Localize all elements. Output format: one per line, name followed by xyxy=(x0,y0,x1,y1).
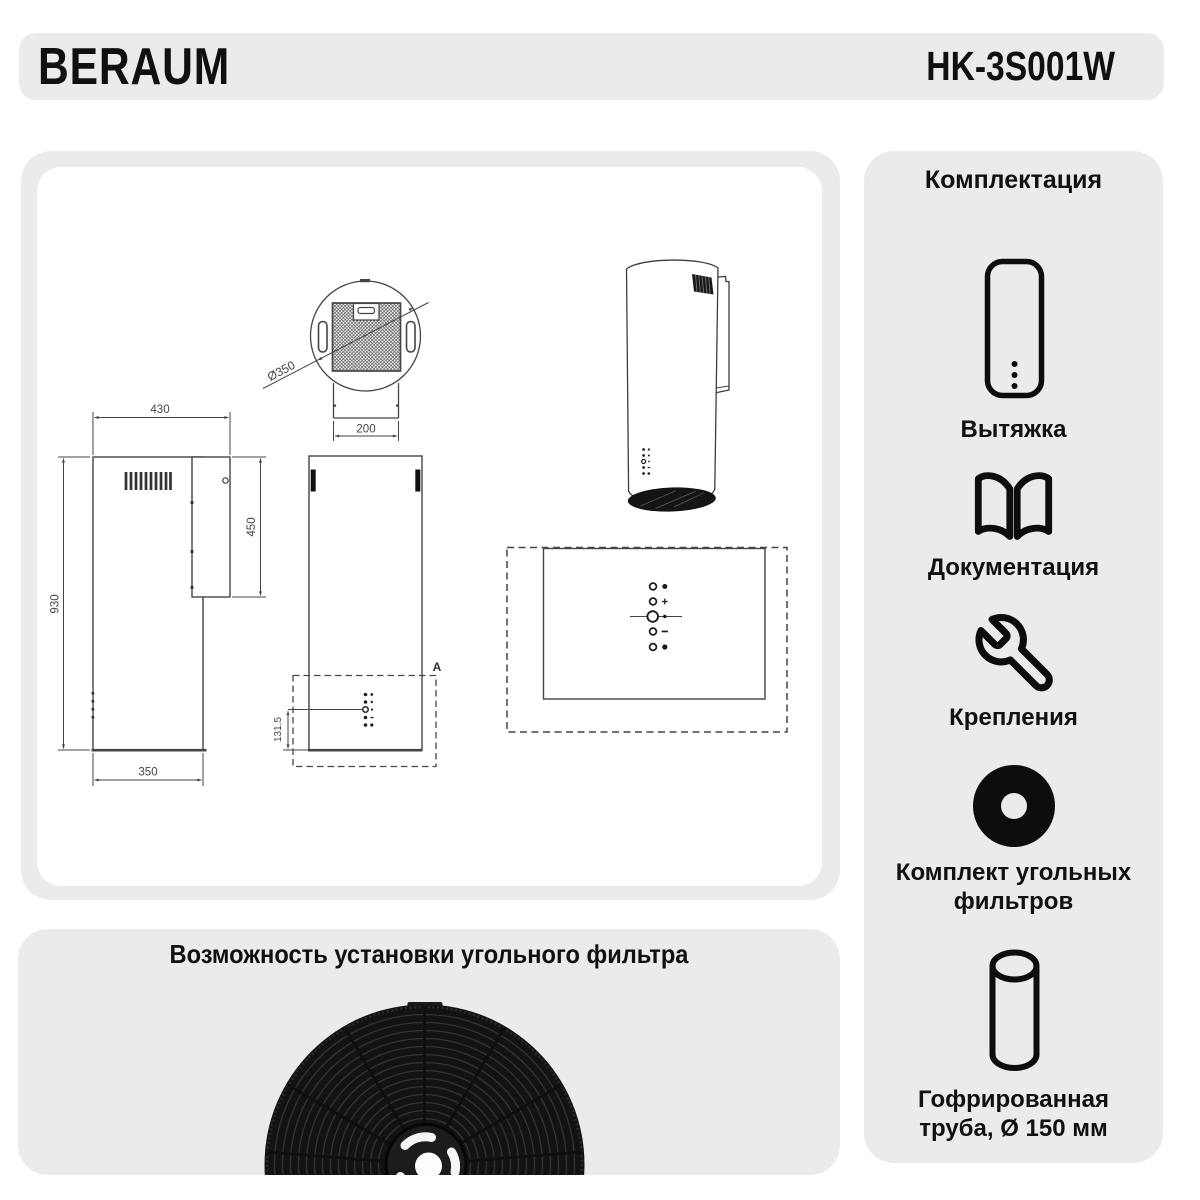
svg-text:200: 200 xyxy=(356,424,375,436)
svg-text:430: 430 xyxy=(150,404,169,416)
svg-text:350: 350 xyxy=(138,767,157,779)
svg-text:930: 930 xyxy=(50,594,62,613)
svg-text:A: A xyxy=(433,660,442,674)
svg-text:450: 450 xyxy=(246,517,258,536)
svg-text:Ø350: Ø350 xyxy=(265,358,298,384)
svg-text:131.5: 131.5 xyxy=(273,717,284,742)
